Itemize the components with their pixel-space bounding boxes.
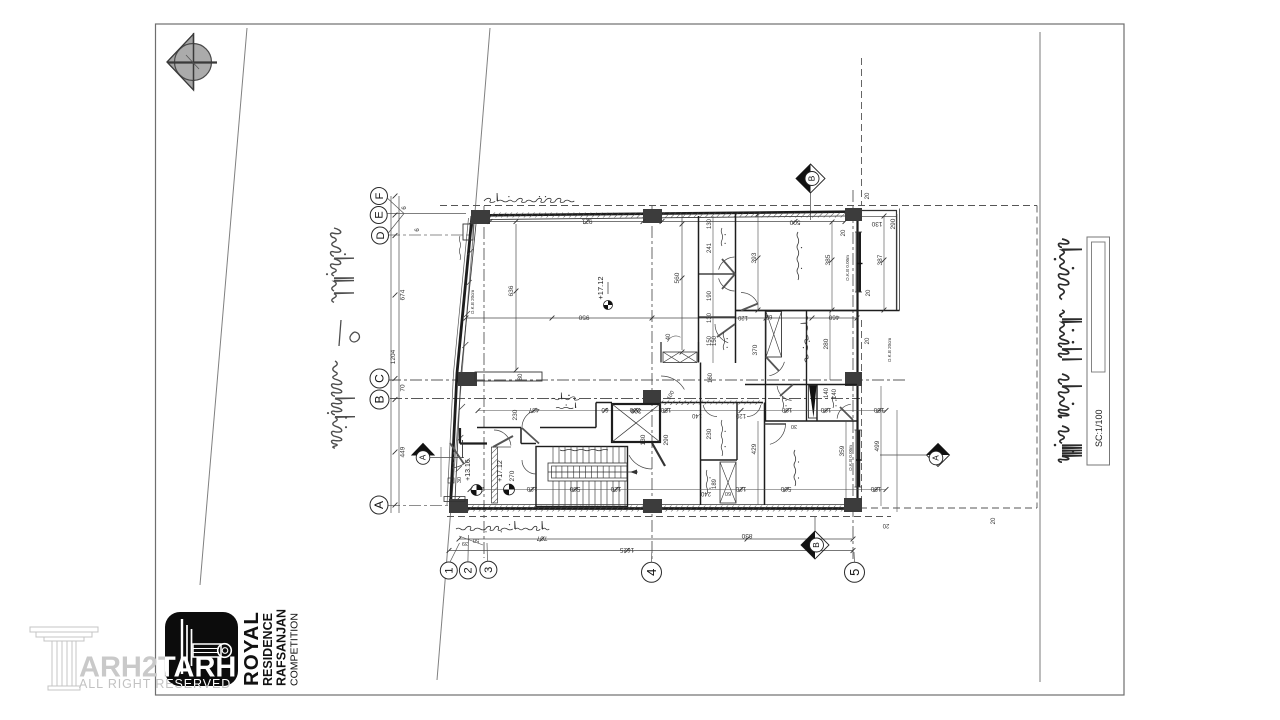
svg-text:3: 3 [483, 567, 495, 573]
svg-text:150: 150 [712, 335, 718, 346]
svg-text:39: 39 [462, 540, 468, 546]
svg-text:580: 580 [569, 485, 580, 492]
svg-text:130: 130 [871, 220, 882, 227]
svg-text:20: 20 [991, 517, 997, 524]
svg-text:80: 80 [518, 373, 524, 380]
svg-text:160: 160 [708, 372, 714, 383]
svg-text:230: 230 [512, 409, 519, 420]
svg-text:RAFSANJAN: RAFSANJAN [275, 609, 289, 686]
svg-text:449: 449 [400, 446, 407, 457]
svg-text:RESIDENCE: RESIDENCE [261, 613, 275, 686]
svg-text:130: 130 [707, 218, 713, 229]
svg-text:A: A [372, 501, 386, 509]
svg-text:200: 200 [630, 407, 641, 414]
svg-text:393: 393 [751, 252, 758, 263]
svg-text:385: 385 [825, 254, 832, 265]
svg-text:120: 120 [610, 485, 621, 492]
svg-text:130: 130 [707, 312, 713, 323]
svg-text:280: 280 [823, 338, 830, 349]
svg-text:150: 150 [660, 406, 671, 413]
svg-text:120: 120 [526, 485, 537, 492]
svg-text:290: 290 [890, 218, 897, 229]
svg-text:150: 150 [873, 406, 884, 413]
svg-text:190: 190 [707, 290, 713, 301]
svg-text:ROYAL: ROYAL [240, 611, 263, 686]
svg-text:B: B [811, 542, 821, 548]
svg-text:20: 20 [841, 229, 847, 236]
svg-text:O.K.B 0.00m: O.K.B 0.00m [848, 445, 853, 471]
svg-text:A: A [418, 454, 427, 460]
svg-text:921: 921 [581, 218, 592, 225]
svg-text:E: E [374, 211, 386, 218]
svg-text:180: 180 [820, 406, 831, 413]
svg-text:+17.12: +17.12 [596, 276, 605, 299]
svg-text:5: 5 [847, 569, 862, 576]
svg-text:387: 387 [877, 254, 884, 265]
svg-text:B: B [807, 175, 817, 181]
svg-text:O.K.B 20cm: O.K.B 20cm [887, 338, 892, 363]
svg-text:4: 4 [644, 569, 659, 576]
svg-text:120: 120 [737, 314, 748, 320]
svg-text:707: 707 [536, 535, 547, 542]
svg-text:60: 60 [725, 490, 731, 496]
svg-text:F: F [374, 192, 386, 199]
svg-text:290: 290 [663, 434, 670, 445]
svg-text:SC:1/100: SC:1/100 [1094, 409, 1104, 447]
svg-text:499: 499 [874, 440, 881, 451]
svg-text:20: 20 [882, 522, 889, 528]
svg-text:C: C [373, 374, 387, 383]
svg-text:150: 150 [870, 485, 881, 492]
svg-text:A: A [931, 455, 940, 461]
svg-text:370: 370 [752, 344, 759, 355]
svg-text:120: 120 [735, 485, 746, 492]
svg-text:COMPETITION: COMPETITION [289, 613, 301, 686]
svg-text:1204: 1204 [390, 349, 397, 364]
svg-text:180: 180 [781, 406, 792, 413]
svg-text:270: 270 [509, 470, 516, 481]
svg-text:674: 674 [400, 289, 407, 300]
svg-text:140: 140 [832, 388, 838, 399]
svg-text:830: 830 [741, 532, 752, 539]
svg-text:B: B [373, 395, 387, 403]
svg-text:O.K.B 20cm: O.K.B 20cm [470, 290, 475, 315]
svg-text:429: 429 [751, 443, 758, 454]
svg-text:130: 130 [640, 434, 647, 445]
svg-text:487: 487 [528, 406, 539, 413]
svg-text:50: 50 [473, 537, 479, 543]
svg-text:636: 636 [508, 285, 515, 296]
svg-text:359: 359 [839, 445, 846, 456]
svg-text:30: 30 [457, 477, 463, 483]
svg-text:70: 70 [400, 384, 407, 392]
svg-text:1625: 1625 [619, 546, 634, 553]
svg-text:60: 60 [601, 406, 609, 413]
svg-text:950: 950 [578, 314, 589, 321]
svg-text:241: 241 [707, 242, 713, 253]
svg-text:+17.12: +17.12 [497, 460, 504, 482]
svg-text:240: 240 [700, 490, 711, 496]
svg-text:20: 20 [865, 337, 871, 344]
svg-text:D: D [375, 231, 387, 239]
svg-text:1: 1 [444, 567, 456, 573]
svg-text:20: 20 [866, 289, 872, 296]
svg-text:30: 30 [791, 423, 797, 429]
svg-text:230: 230 [706, 428, 713, 439]
svg-text:20: 20 [865, 192, 871, 199]
svg-text:189: 189 [712, 478, 718, 489]
svg-text:2: 2 [463, 567, 475, 573]
svg-text:O.K.B 0.00m: O.K.B 0.00m [845, 255, 850, 281]
svg-text:140: 140 [824, 387, 830, 398]
svg-text:560: 560 [674, 272, 681, 283]
svg-text:500: 500 [780, 485, 791, 492]
